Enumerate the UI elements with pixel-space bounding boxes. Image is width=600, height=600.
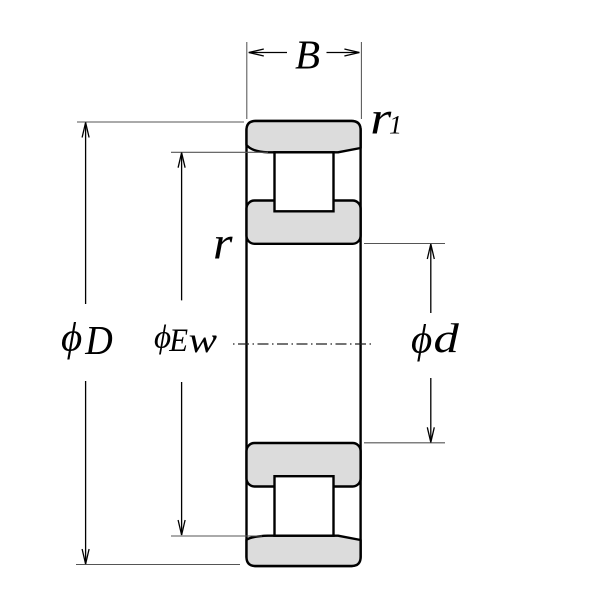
svg-text:r: r bbox=[213, 218, 233, 270]
svg-text:D: D bbox=[84, 317, 112, 363]
svg-text:ϕ: ϕ bbox=[61, 314, 82, 360]
svg-text:B: B bbox=[295, 32, 320, 78]
svg-text:E: E bbox=[168, 323, 188, 359]
svg-text:w: w bbox=[189, 320, 218, 360]
svg-text:1: 1 bbox=[389, 111, 402, 140]
svg-text:d: d bbox=[434, 315, 460, 361]
svg-text:ϕ: ϕ bbox=[411, 316, 432, 362]
